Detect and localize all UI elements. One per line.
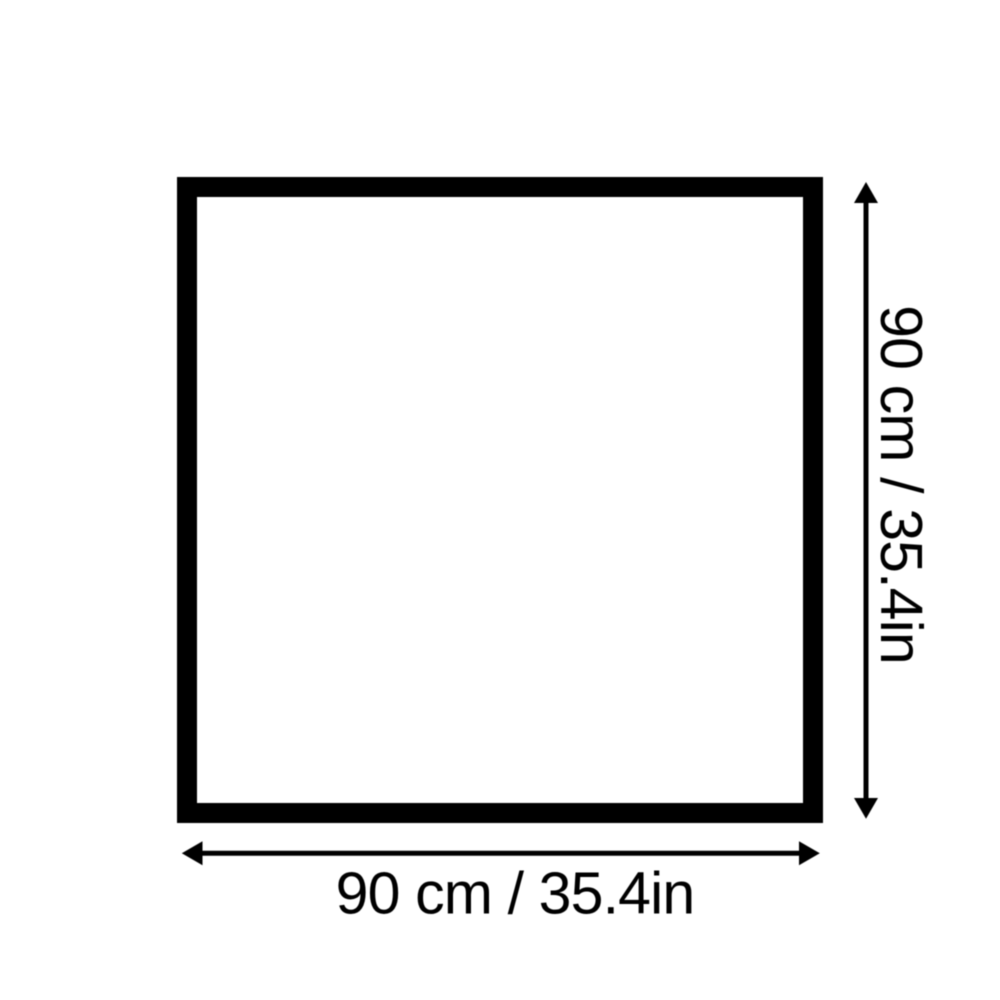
svg-text:90 cm / 35.4in: 90 cm / 35.4in xyxy=(868,305,934,664)
svg-text:90 cm / 35.4in: 90 cm / 35.4in xyxy=(336,861,695,927)
